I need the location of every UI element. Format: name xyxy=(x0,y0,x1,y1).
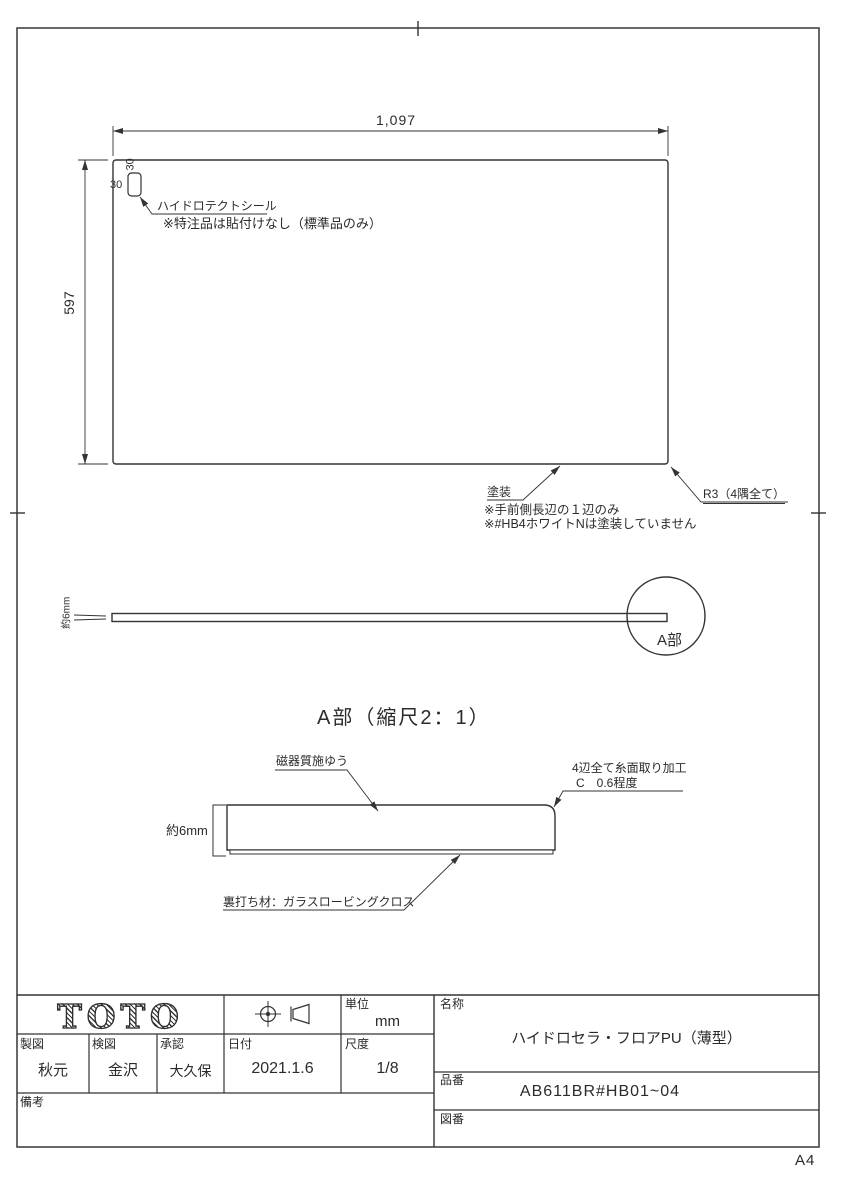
date-label: 日付 xyxy=(228,1038,252,1052)
dim-height-text: 597 xyxy=(61,283,77,323)
approver-label: 承認 xyxy=(160,1038,184,1052)
unit-label: 単位 xyxy=(345,998,369,1012)
checker-label: 検図 xyxy=(92,1038,116,1052)
approver-value: 大久保 xyxy=(157,1063,224,1079)
chamfer-leader-line xyxy=(554,791,683,807)
backing-label: 裏打ち材：ガラスロービングクロス xyxy=(223,896,415,910)
detail-mark-label: A部 xyxy=(657,632,682,649)
hydrotect-seal-shape xyxy=(128,173,141,196)
side-thickness-label: 約6mm xyxy=(61,590,73,636)
seal-label: ハイドロテクトシール xyxy=(157,200,277,214)
remarks-label: 備考 xyxy=(20,1096,44,1110)
product-name-value: ハイドロセラ・フロアPU（薄型） xyxy=(434,1030,819,1047)
detail-thickness-bracket xyxy=(213,805,226,856)
detail-backing-layer xyxy=(230,850,553,854)
paint-note-2: ※#HB4ホワイトNは塗装していません xyxy=(484,517,697,531)
toto-logo: TOTO xyxy=(17,998,224,1036)
glaze-label: 磁器質施ゆう xyxy=(276,755,348,769)
detail-body-section xyxy=(227,805,555,850)
part-number-value: AB611BR#HB01~04 xyxy=(450,1083,750,1101)
seal-note: ※特注品は貼付けなし（標準品のみ） xyxy=(163,217,382,232)
chamfer-note-1: 4辺全て糸面取り加工 xyxy=(572,762,687,776)
drawing-sheet: 1,097 597 30 30 ハイドロテクトシール ※特注品は貼付けなし（標準… xyxy=(0,0,848,1200)
checker-value: 金沢 xyxy=(89,1062,157,1079)
drafter-label: 製図 xyxy=(20,1038,44,1052)
drafter-value: 秋元 xyxy=(17,1062,89,1079)
product-name-label: 名称 xyxy=(440,998,464,1012)
paint-label: 塗装 xyxy=(487,486,511,500)
side-thickness-line xyxy=(74,619,106,620)
side-view-panel-section xyxy=(112,614,667,622)
seal-offset-left-text: 30 xyxy=(110,179,122,192)
scale-value: 1/8 xyxy=(341,1060,434,1078)
detail-thickness-label: 約6mm xyxy=(166,824,208,839)
corner-radius-label: R3（4隅全て） xyxy=(703,488,785,504)
side-thickness-line xyxy=(74,615,106,616)
detail-view-title: A部（縮尺2：1） xyxy=(317,707,491,730)
projection-symbol-icon xyxy=(255,1001,309,1027)
unit-value: mm xyxy=(341,1013,434,1030)
dim-width-text: 1,097 xyxy=(376,112,416,128)
drawing-number-label: 図番 xyxy=(440,1113,464,1127)
chamfer-note-2: C 0.6程度 xyxy=(576,777,637,791)
paint-note-1: ※手前側長辺の１辺のみ xyxy=(484,503,619,517)
seal-offset-top-text: 30 xyxy=(125,153,138,175)
sheet-size-label: A4 xyxy=(795,1152,815,1169)
scale-label: 尺度 xyxy=(345,1038,369,1052)
date-value: 2021.1.6 xyxy=(224,1060,341,1078)
